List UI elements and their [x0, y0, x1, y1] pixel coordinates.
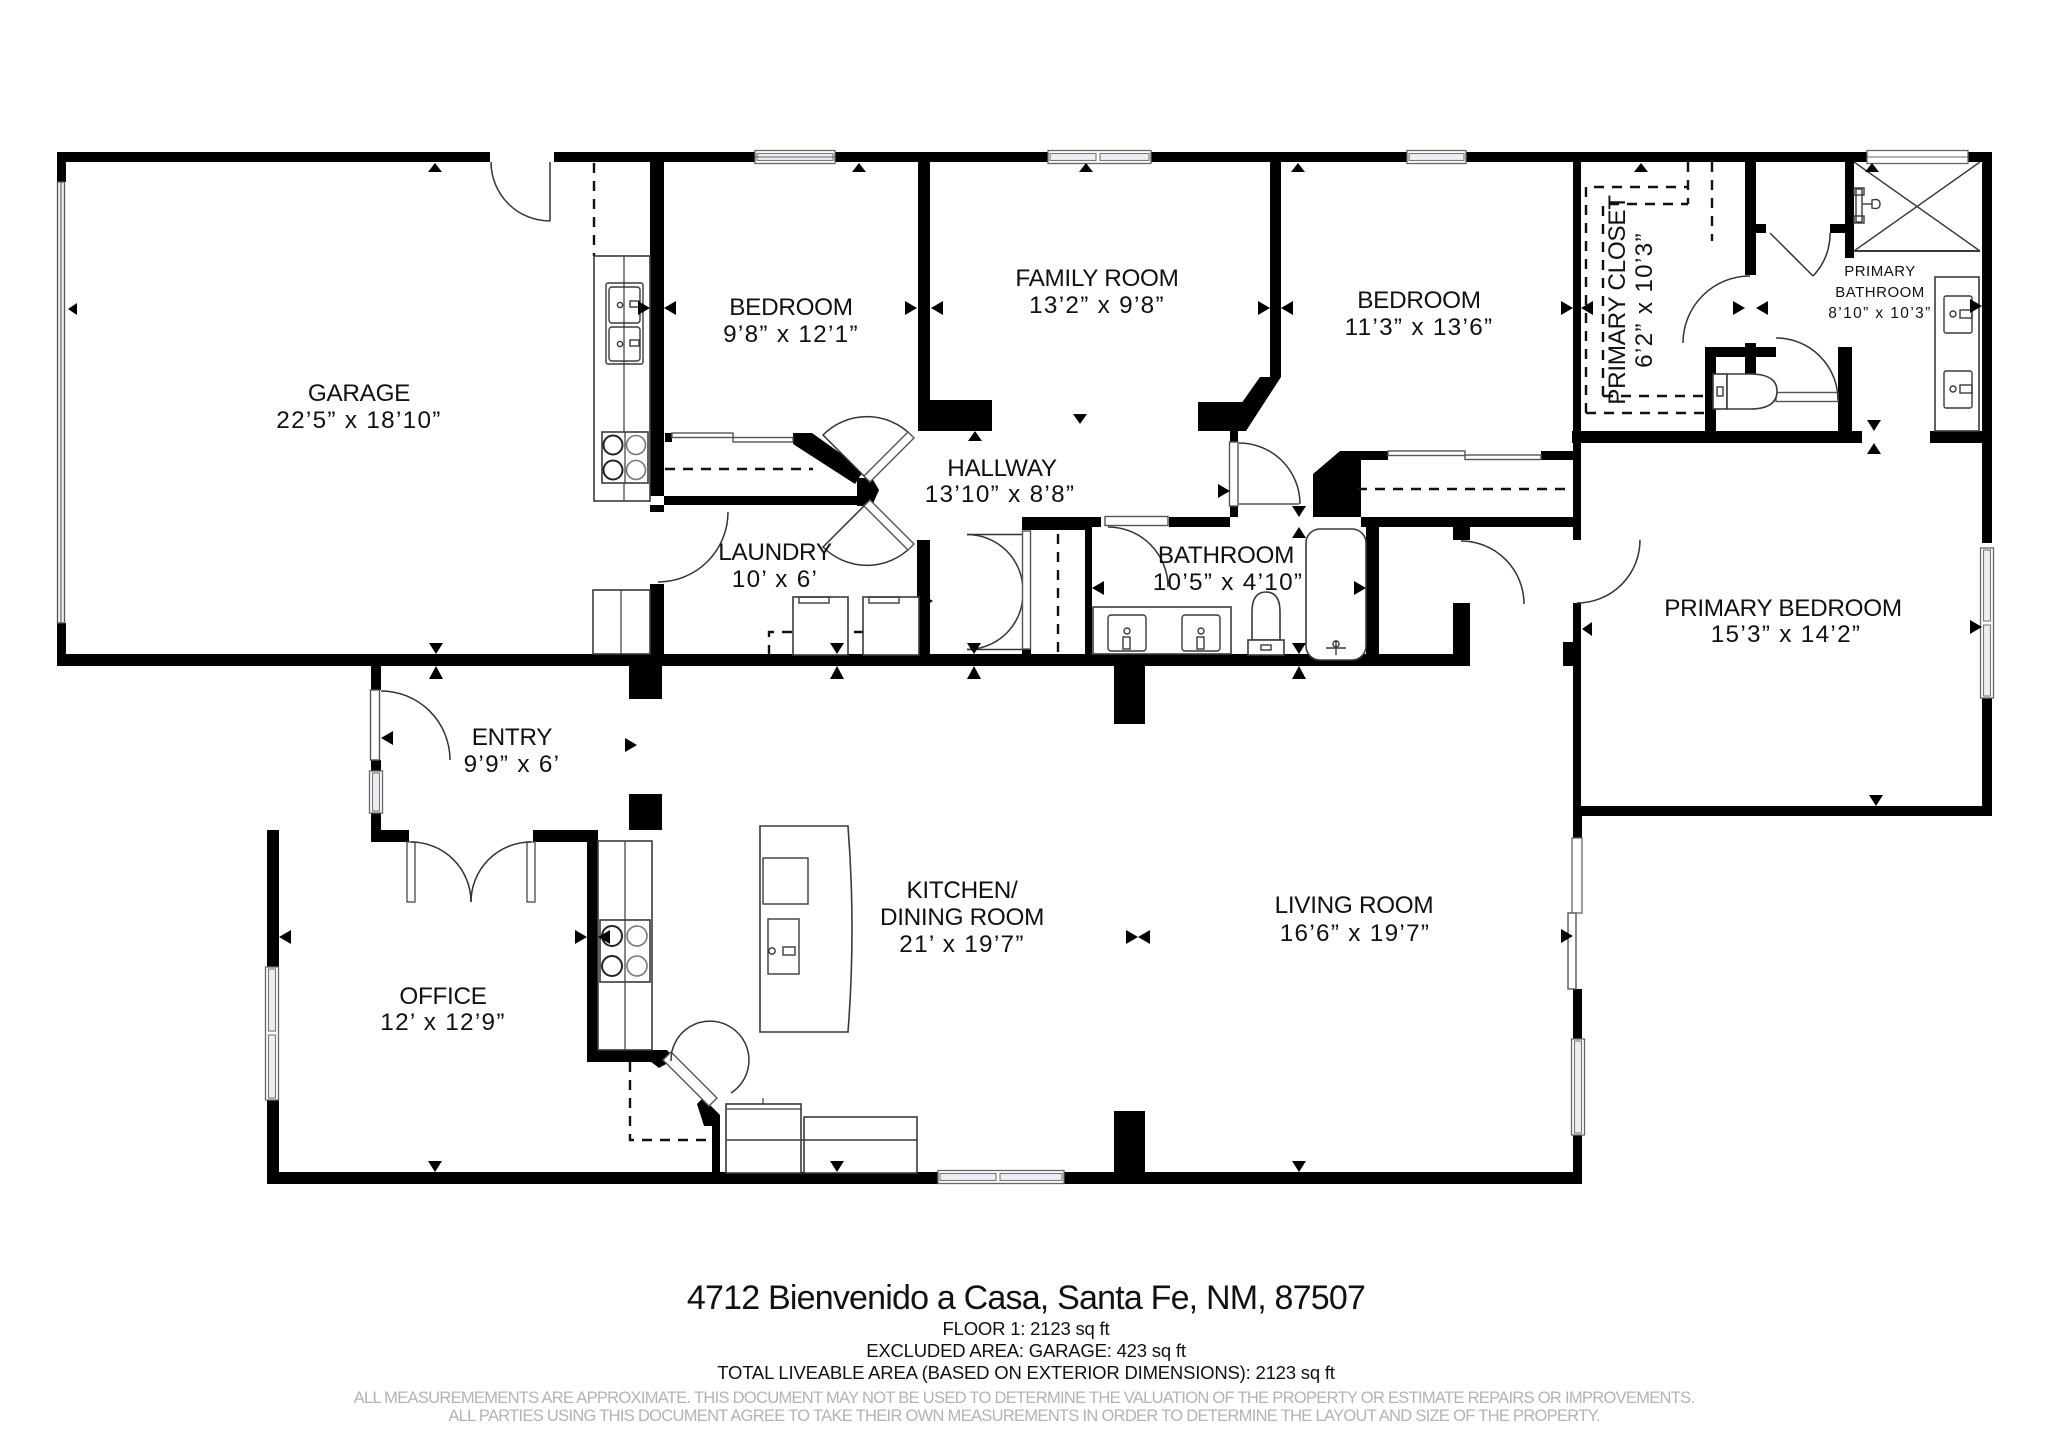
svg-text:PRIMARY: PRIMARY [1844, 263, 1916, 280]
svg-text:KITCHEN/: KITCHEN/ [907, 877, 1019, 904]
svg-text:TOTAL LIVEABLE AREA (BASED ON: TOTAL LIVEABLE AREA (BASED ON EXTERIOR D… [717, 1362, 1335, 1383]
svg-text:BEDROOM: BEDROOM [1357, 287, 1480, 314]
svg-text:12’ x 12’9”: 12’ x 12’9” [380, 1009, 506, 1036]
svg-text:10’5” x 4’10”: 10’5” x 4’10” [1153, 569, 1304, 596]
svg-text:10’ x 6’: 10’ x 6’ [732, 566, 818, 593]
svg-text:13’2” x 9’8”: 13’2” x 9’8” [1029, 292, 1165, 319]
svg-text:PRIMARY BEDROOM: PRIMARY BEDROOM [1664, 595, 1902, 622]
svg-text:6’2” x 10’3”: 6’2” x 10’3” [1631, 232, 1658, 368]
svg-text:DINING ROOM: DINING ROOM [880, 904, 1044, 931]
svg-text:LAUNDRY: LAUNDRY [718, 539, 832, 566]
svg-text:FAMILY ROOM: FAMILY ROOM [1015, 265, 1178, 292]
svg-text:PRIMARY CLOSET: PRIMARY CLOSET [1604, 195, 1631, 405]
svg-text:BATHROOM: BATHROOM [1158, 542, 1294, 569]
svg-text:4712 Bienvenido a Casa, Santa: 4712 Bienvenido a Casa, Santa Fe, NM, 87… [687, 1279, 1365, 1317]
svg-text:OFFICE: OFFICE [399, 983, 486, 1010]
svg-text:8’10” x 10’3”: 8’10” x 10’3” [1828, 305, 1932, 322]
svg-text:HALLWAY: HALLWAY [947, 455, 1057, 482]
svg-text:ALL MEASUREMEMENTS ARE APPROXI: ALL MEASUREMEMENTS ARE APPROXIMATE. THIS… [354, 1389, 1695, 1407]
svg-text:ENTRY: ENTRY [472, 724, 553, 751]
svg-text:21’ x 19’7”: 21’ x 19’7” [899, 931, 1025, 958]
svg-text:FLOOR 1: 2123 sq ft: FLOOR 1: 2123 sq ft [943, 1318, 1110, 1339]
svg-text:15’3” x 14’2”: 15’3” x 14’2” [1711, 621, 1862, 648]
svg-text:9’8” x 12’1”: 9’8” x 12’1” [723, 321, 859, 348]
svg-text:GARAGE: GARAGE [308, 380, 410, 407]
svg-text:16’6” x 19’7”: 16’6” x 19’7” [1280, 920, 1431, 947]
svg-text:BATHROOM: BATHROOM [1835, 284, 1925, 301]
svg-text:LIVING ROOM: LIVING ROOM [1275, 892, 1434, 919]
svg-text:ALL PARTIES USING THIS DOCUMEN: ALL PARTIES USING THIS DOCUMENT AGREE TO… [448, 1407, 1599, 1425]
svg-text:EXCLUDED AREA: GARAGE: 423 sq: EXCLUDED AREA: GARAGE: 423 sq ft [866, 1340, 1186, 1361]
svg-text:22’5” x 18’10”: 22’5” x 18’10” [276, 407, 441, 434]
svg-text:13’10” x 8’8”: 13’10” x 8’8” [925, 481, 1076, 508]
svg-text:9’9” x 6’: 9’9” x 6’ [464, 751, 561, 778]
svg-text:11’3” x 13’6”: 11’3” x 13’6” [1345, 314, 1494, 341]
svg-text:BEDROOM: BEDROOM [729, 294, 852, 321]
